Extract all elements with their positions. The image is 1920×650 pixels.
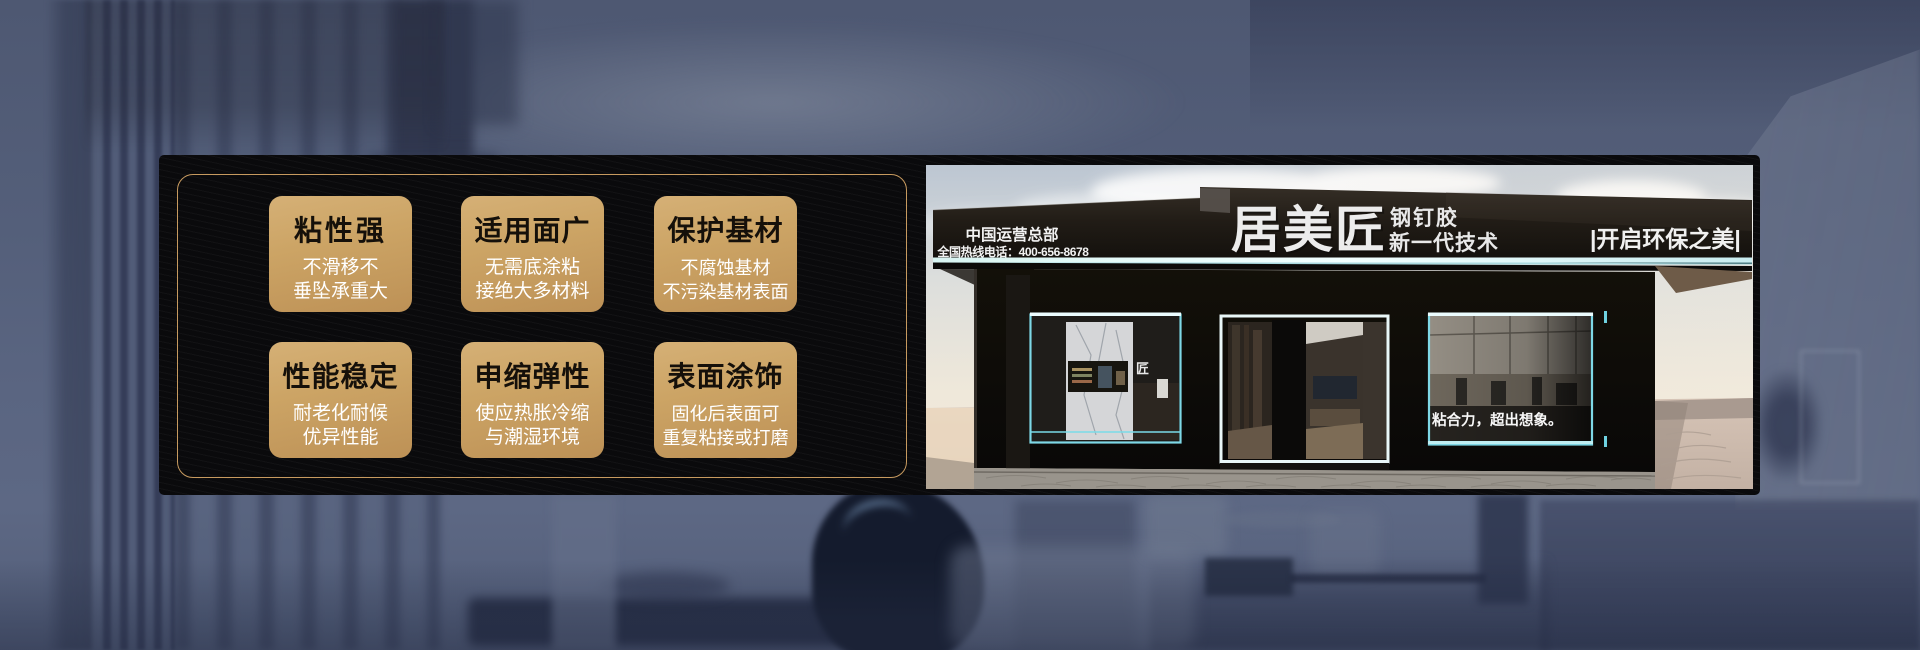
svg-text:匠: 匠 xyxy=(1136,361,1149,376)
svg-text:居美匠: 居美匠 xyxy=(1231,202,1387,258)
svg-text:新一代技术: 新一代技术 xyxy=(1389,231,1499,255)
svg-text:中国运营总部: 中国运营总部 xyxy=(965,225,1059,244)
svg-text:钢钉胶: 钢钉胶 xyxy=(1390,206,1459,230)
svg-text:|开启环保之美|: |开启环保之美| xyxy=(1590,226,1741,252)
svg-text:粘合力，超出想象。: 粘合力，超出想象。 xyxy=(1432,411,1563,429)
svg-text:全国热线电话：400-656-8678: 全国热线电话：400-656-8678 xyxy=(936,244,1089,259)
